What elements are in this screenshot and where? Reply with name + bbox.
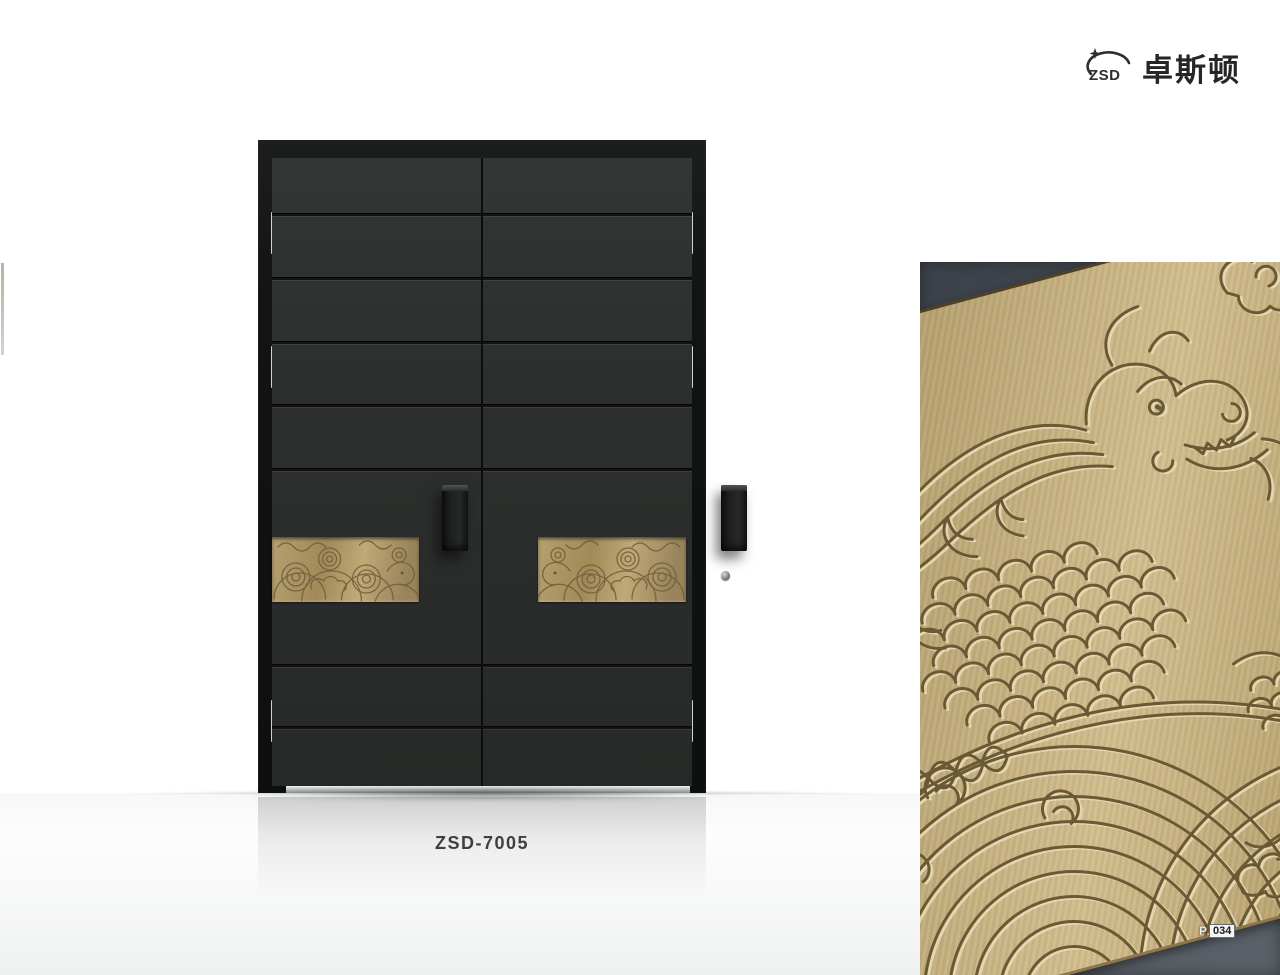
- panel-groove: [483, 726, 692, 729]
- brass-plate: [920, 262, 1280, 975]
- panel-groove: [483, 664, 692, 667]
- panel-groove: [272, 277, 481, 280]
- door-handle[interactable]: [721, 485, 747, 551]
- panel-groove: [483, 277, 692, 280]
- brass-inlay-left: [272, 537, 419, 602]
- panel-groove: [272, 726, 481, 729]
- panel-groove: [272, 213, 481, 216]
- door-handle[interactable]: [442, 485, 468, 551]
- logo-chinese-name: 卓斯顿: [1142, 55, 1241, 90]
- engraved-qilin-detail-photo: P 034: [920, 262, 1280, 975]
- panel-groove: [483, 213, 692, 216]
- brass-inlay-right: [538, 537, 686, 602]
- door-leaf-left: [272, 158, 481, 786]
- page-edge-sliver: [1, 263, 4, 355]
- door-frame: [258, 140, 706, 793]
- keyhole-icon[interactable]: [721, 571, 730, 580]
- logo-latin-text: ZSD: [1089, 67, 1121, 84]
- zsd-logo-mark: ZSD: [1084, 46, 1134, 90]
- panel-groove: [483, 404, 692, 407]
- door-leaves: [272, 158, 692, 786]
- door-floor-reflection: [258, 797, 706, 912]
- panel-groove: [483, 341, 692, 344]
- handle-top-cap: [442, 485, 468, 491]
- panel-groove: [272, 468, 481, 471]
- page-prefix: P: [1199, 924, 1207, 938]
- qilin-engraving-art: [920, 262, 1280, 975]
- page-number: 034: [1209, 924, 1235, 938]
- panel-groove: [272, 404, 481, 407]
- door-leaf-right: [481, 158, 692, 786]
- panel-groove: [272, 341, 481, 344]
- panel-groove: [272, 664, 481, 667]
- page-number-badge: P 034: [1199, 924, 1235, 938]
- panel-groove: [483, 468, 692, 471]
- handle-top-cap: [721, 485, 747, 491]
- brand-logo: ZSD 卓斯顿: [1084, 42, 1241, 90]
- product-model-label: ZSD-7005: [258, 833, 706, 854]
